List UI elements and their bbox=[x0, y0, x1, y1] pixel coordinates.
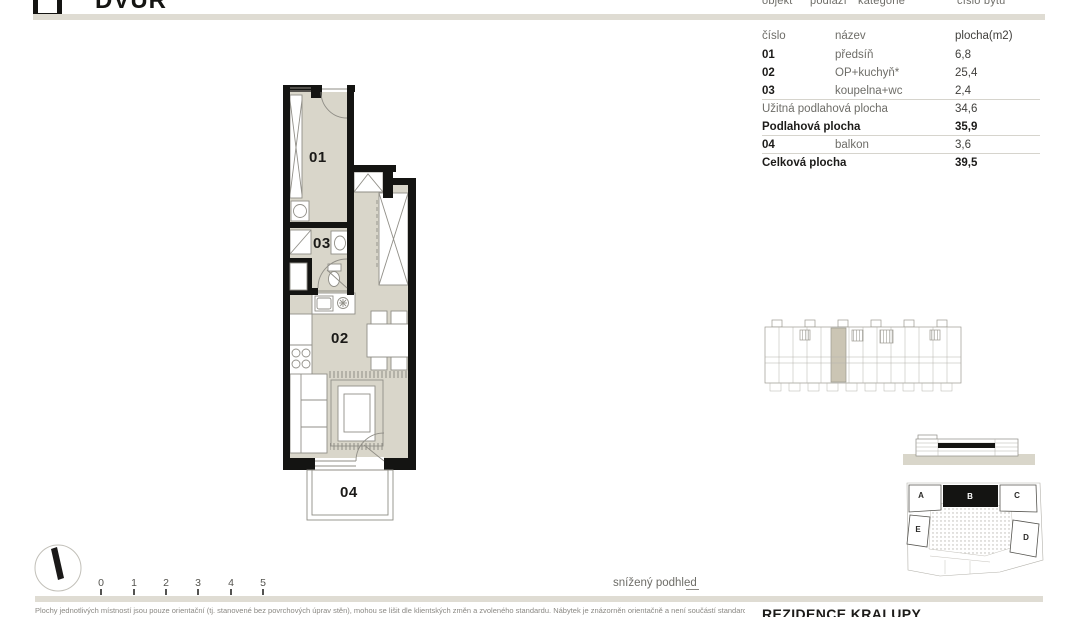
summary-area: 39,5 bbox=[955, 157, 1040, 169]
scale-bar: 0 1 2 3 4 5 bbox=[98, 577, 266, 595]
highlighted-floor-band bbox=[938, 443, 995, 448]
scale-tick-1: 1 bbox=[131, 577, 137, 589]
room-label-02: 02 bbox=[331, 330, 349, 347]
scale-tick-3: 3 bbox=[195, 577, 201, 589]
room-area: 2,4 bbox=[955, 85, 1040, 97]
header-divider-bar bbox=[33, 14, 1045, 20]
table-row: 01 předsíň 6,8 bbox=[762, 46, 1040, 64]
room-number: 01 bbox=[762, 49, 835, 61]
room-area: 3,6 bbox=[955, 139, 1040, 151]
room-label-04: 04 bbox=[340, 484, 358, 501]
room-area-table: číslo název plocha(m2) 01 předsíň 6,8 02… bbox=[762, 26, 1040, 172]
room-area: 25,4 bbox=[955, 67, 1040, 79]
summary-area: 34,6 bbox=[955, 103, 1040, 115]
room-number: 02 bbox=[762, 67, 835, 79]
building-d-label: D bbox=[1023, 533, 1029, 542]
table-summary-row: Celková plocha 39,5 bbox=[762, 154, 1040, 172]
room-number: 03 bbox=[762, 85, 835, 97]
north-compass bbox=[35, 545, 81, 591]
col-header-number: číslo bbox=[762, 30, 835, 42]
floor-plan-drawing bbox=[270, 75, 435, 527]
building-a-label: A bbox=[918, 491, 924, 500]
disclaimer-text: Plochy jednotlivých místností jsou pouze… bbox=[35, 606, 745, 615]
room-name: OP+kuchyň* bbox=[835, 67, 955, 79]
room-area: 6,8 bbox=[955, 49, 1040, 61]
col-header-area: plocha(m2) bbox=[955, 30, 1040, 42]
meta-label-objekt: objekt bbox=[762, 0, 793, 7]
col-header-name: název bbox=[835, 30, 955, 42]
building-e-label: E bbox=[915, 525, 921, 534]
table-row: 04 balkon 3,6 bbox=[762, 136, 1040, 154]
room-label-03: 03 bbox=[313, 235, 331, 252]
floorplan-sheet-page: DVŮR objekt podlaží kategorie číslo bytu… bbox=[0, 0, 1079, 617]
building-key-plan bbox=[765, 320, 961, 391]
summary-area: 35,9 bbox=[955, 121, 1040, 133]
scale-tick-2: 2 bbox=[163, 577, 169, 589]
project-title: REZIDENCE KRALUPY bbox=[762, 606, 921, 617]
summary-label: Celková plocha bbox=[762, 157, 955, 169]
building-b-label: B bbox=[967, 492, 973, 501]
table-row: 03 koupelna+wc 2,4 bbox=[762, 82, 1040, 100]
location-graphics: A B C D E bbox=[755, 315, 1079, 600]
site-plan: A B C D E bbox=[907, 483, 1043, 576]
scale-tick-0: 0 bbox=[98, 577, 104, 589]
room-name: balkon bbox=[835, 139, 955, 151]
logo-text: DVŮR bbox=[95, 0, 167, 15]
footer-divider-bar bbox=[35, 596, 1043, 602]
legend-line-sample bbox=[686, 589, 699, 590]
legend-lowered-ceiling: snížený podhled bbox=[613, 577, 697, 589]
room-name: předsíň bbox=[835, 49, 955, 61]
meta-label-podlazi: podlaží bbox=[810, 0, 847, 7]
compass-and-scale: 0 1 2 3 4 5 bbox=[30, 540, 270, 600]
table-header-row: číslo název plocha(m2) bbox=[762, 26, 1040, 46]
scale-tick-5: 5 bbox=[260, 577, 266, 589]
summary-label: Užitná podlahová plocha bbox=[762, 103, 955, 115]
meta-label-cislo-bytu: číslo bytu bbox=[957, 0, 1005, 7]
building-a bbox=[909, 485, 941, 512]
table-row: 02 OP+kuchyň* 25,4 bbox=[762, 64, 1040, 82]
building-c-label: C bbox=[1014, 491, 1020, 500]
room-number: 04 bbox=[762, 139, 835, 151]
room-label-01: 01 bbox=[309, 149, 327, 166]
table-summary-row: Užitná podlahová plocha 34,6 bbox=[762, 100, 1040, 118]
table-summary-row: Podlahová plocha 35,9 bbox=[762, 118, 1040, 136]
summary-label: Podlahová plocha bbox=[762, 121, 955, 133]
room-name: koupelna+wc bbox=[835, 85, 955, 97]
building-elevation bbox=[903, 435, 1035, 465]
meta-label-kategorie: kategorie bbox=[858, 0, 905, 7]
scale-tick-4: 4 bbox=[228, 577, 234, 589]
